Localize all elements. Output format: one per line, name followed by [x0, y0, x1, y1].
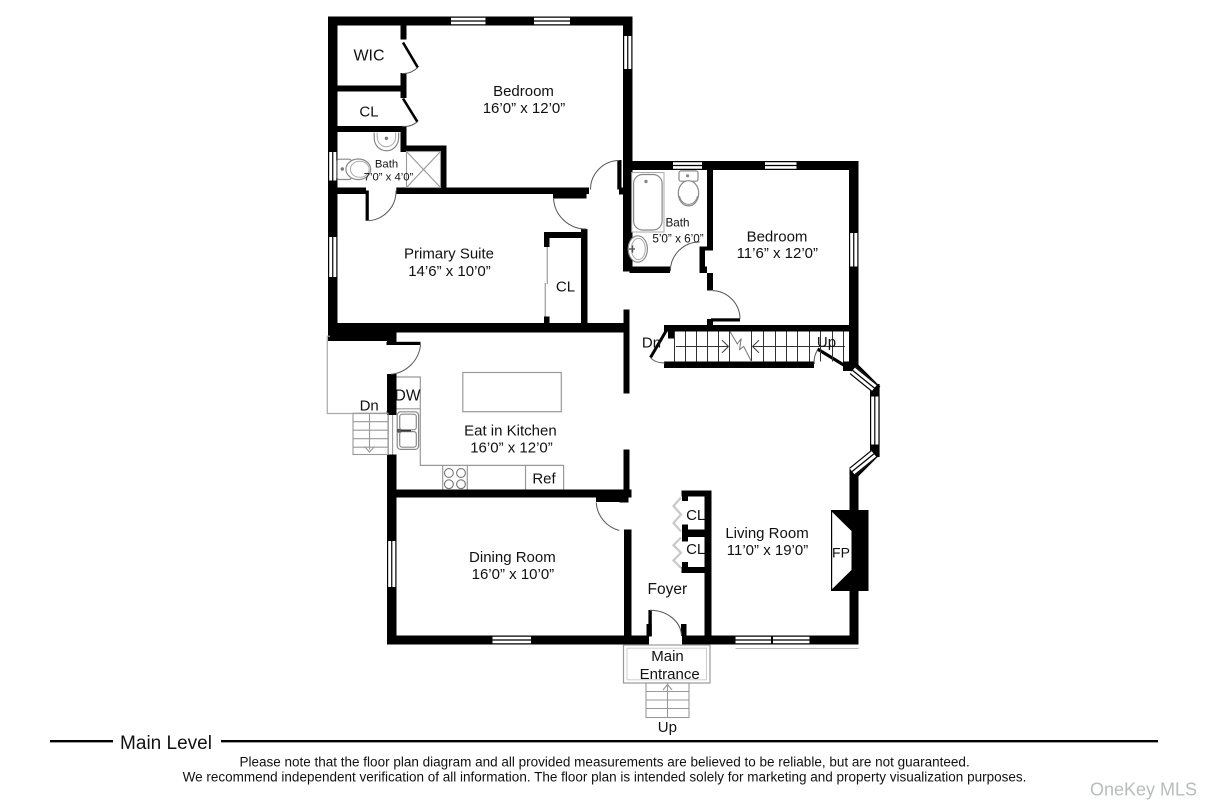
svg-text:Main: Main [651, 648, 684, 665]
svg-text:Main Level: Main Level [120, 733, 212, 754]
svg-text:Dining Room: Dining Room [469, 549, 556, 566]
svg-text:14’6” x 10’0”: 14’6” x 10’0” [408, 263, 491, 280]
svg-text:7’0” x 4’0”: 7’0” x 4’0” [364, 172, 414, 184]
svg-text:Dn: Dn [642, 334, 661, 351]
svg-text:Please note that the floor pla: Please note that the floor plan diagram … [239, 754, 969, 769]
svg-text:Bath: Bath [665, 217, 689, 230]
svg-text:Ref: Ref [532, 471, 556, 488]
svg-text:CL: CL [556, 278, 575, 295]
svg-text:Primary Suite: Primary Suite [404, 245, 494, 262]
svg-text:11’0” x 19’0”: 11’0” x 19’0” [727, 542, 808, 559]
svg-text:FP: FP [832, 545, 850, 561]
svg-text:DW: DW [395, 388, 421, 405]
svg-text:Entrance: Entrance [640, 666, 700, 683]
svg-text:5’0” x 6’0”: 5’0” x 6’0” [652, 233, 703, 246]
svg-text:Foyer: Foyer [647, 581, 687, 598]
svg-text:Eat in Kitchen: Eat in Kitchen [464, 422, 557, 439]
svg-text:16’0” x 12’0”: 16’0” x 12’0” [470, 439, 553, 456]
svg-text:11’6” x 12’0”: 11’6” x 12’0” [737, 245, 818, 262]
svg-text:Bedroom: Bedroom [493, 83, 554, 100]
svg-text:We recommend independent verif: We recommend independent verification of… [183, 770, 1027, 785]
svg-text:CL: CL [686, 507, 705, 524]
svg-text:Bedroom: Bedroom [747, 228, 808, 245]
svg-text:Up: Up [817, 334, 836, 351]
svg-text:OneKey MLS: OneKey MLS [1090, 779, 1197, 799]
svg-text:Up: Up [658, 719, 677, 736]
svg-text:CL: CL [686, 541, 705, 558]
svg-text:WIC: WIC [353, 47, 384, 64]
svg-text:16’0” x 12’0”: 16’0” x 12’0” [483, 100, 566, 117]
svg-text:CL: CL [359, 103, 378, 120]
svg-text:Dn: Dn [360, 397, 379, 414]
svg-text:16’0” x 10’0”: 16’0” x 10’0” [472, 566, 555, 583]
svg-text:Bath: Bath [375, 159, 398, 171]
svg-text:Living Room: Living Room [725, 525, 808, 542]
